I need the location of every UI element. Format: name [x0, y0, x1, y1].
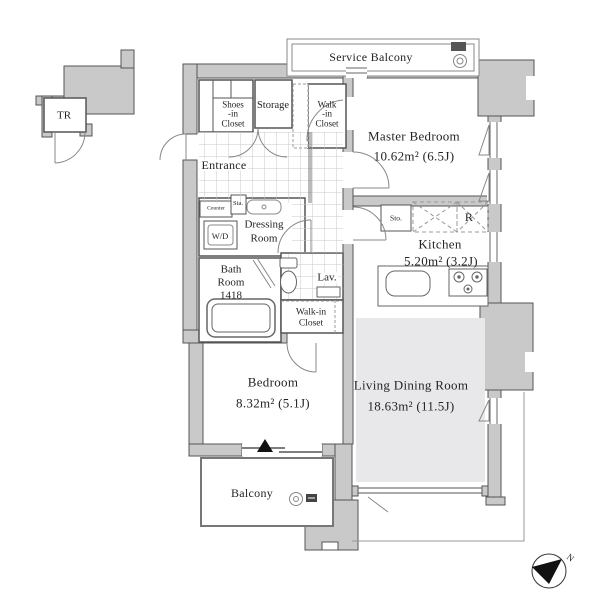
sto-label: Sto.	[390, 214, 402, 222]
living-dining-area: 18.63m² (11.5J)	[368, 400, 455, 413]
walk-in-closet-top-label-2: -in	[322, 110, 332, 119]
bedroom-area: 8.32m² (5.1J)	[236, 397, 310, 410]
shoes-closet-label-3: Closet	[221, 120, 244, 129]
bath-room-label-1: Bath	[221, 265, 242, 276]
stove-icon	[449, 269, 487, 296]
bedroom-label: Bedroom	[248, 376, 298, 389]
walk-in-closet-mid-label-2: Closet	[299, 319, 323, 329]
lavatory-label: Lav.	[315, 273, 338, 284]
bath-room-label-3: 1418	[220, 291, 242, 302]
kitchen-label: Kitchen	[418, 238, 461, 251]
bath-room-label-2: Room	[218, 278, 245, 289]
storage-label: Storage	[257, 101, 289, 112]
compass-north-label: N	[565, 552, 577, 564]
trunk-room-label: TR	[57, 111, 71, 122]
kitchen-counter	[378, 266, 488, 306]
compass-icon: N	[532, 552, 576, 588]
sink-icon	[386, 271, 430, 296]
refrigerator-label: R	[465, 211, 473, 223]
bathtub-icon	[207, 299, 275, 337]
kitchen-area: 5.20m² (3.2J)	[404, 255, 478, 268]
vanity-icon	[247, 200, 281, 214]
sta-label: Sta.	[233, 201, 243, 208]
dressing-room-label-1: Dressing	[244, 220, 283, 231]
master-bedroom-area: 10.62m² (6.5J)	[374, 150, 455, 163]
living-dining-label: Living Dining Room	[354, 379, 468, 392]
walk-in-closet-top-label-3: Closet	[315, 120, 338, 129]
chunk-notch	[322, 542, 338, 550]
walk-in-closet-mid-label-1: Walk-in	[296, 308, 326, 318]
dressing-room-label-2: Room	[251, 234, 278, 245]
entrance-label: Entrance	[199, 159, 248, 171]
floor-plan-drawing: N	[0, 0, 600, 600]
balcony-label: Balcony	[231, 487, 273, 499]
counter-label: Counter	[207, 206, 225, 212]
washer-dryer-label: W/D	[212, 232, 229, 241]
lav-basin-icon	[317, 287, 340, 297]
master-bedroom-label: Master Bedroom	[368, 130, 460, 143]
service-balcony-label: Service Balcony	[329, 51, 412, 63]
shoes-closet-label-2: -in	[228, 110, 238, 119]
floor-plan: N Service Balcony TR Shoes -in Closet St…	[0, 0, 600, 600]
